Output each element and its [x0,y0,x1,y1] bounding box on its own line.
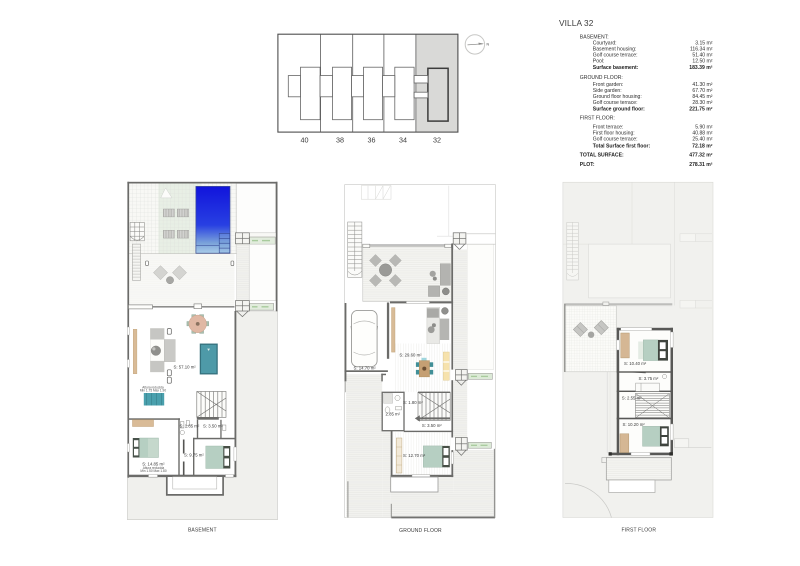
svg-text:Surface ground floor:: Surface ground floor: [593,107,645,113]
svg-text:VILLA 32: VILLA 32 [559,18,594,28]
svg-text:S: 10.40 m²: S: 10.40 m² [624,361,647,366]
svg-text:Total Surface first floor:: Total Surface first floor: [593,143,651,149]
svg-text:Min 1.50 Max 1.80: Min 1.50 Max 1.80 [140,469,166,473]
svg-text:32: 32 [433,136,441,145]
svg-text:FIRST FLOOR:: FIRST FLOOR: [580,115,615,121]
svg-text:S: 2.55 m²: S: 2.55 m² [622,396,642,401]
svg-text:36: 36 [368,136,376,145]
svg-text:Pool:: Pool: [593,58,605,64]
svg-text:GROUND FLOOR:: GROUND FLOOR: [580,75,623,81]
svg-text:28.30 m²: 28.30 m² [692,100,712,106]
svg-text:38: 38 [336,136,344,145]
svg-text:S: 3.50 m²: S: 3.50 m² [203,423,223,428]
svg-text:12.50 m²: 12.50 m² [692,58,712,64]
svg-text:Golf course terrace:: Golf course terrace: [593,137,638,143]
svg-text:S: 1.80 m²: S: 1.80 m² [403,400,423,405]
svg-text:BASEMENT: BASEMENT [188,528,217,534]
svg-text:GROUND FLOOR: GROUND FLOOR [399,528,442,534]
svg-text:S: 12.70 m²: S: 12.70 m² [403,453,426,458]
svg-text:278.31 m²: 278.31 m² [689,162,713,168]
svg-text:S: 10.20 m²: S: 10.20 m² [623,422,646,427]
svg-text:40: 40 [301,136,309,145]
svg-text:S: 57.10 m²: S: 57.10 m² [174,364,197,369]
svg-text:S: 3.75 m²: S: 3.75 m² [639,376,659,381]
svg-text:PLOT:: PLOT: [580,162,595,168]
svg-text:FIRST FLOOR: FIRST FLOOR [621,528,656,534]
svg-text:Golf course terrace:: Golf course terrace: [593,100,638,106]
svg-text:Min 1.75 Max 1.90: Min 1.75 Max 1.90 [140,389,166,393]
svg-text:477.32 m²: 477.32 m² [689,153,713,159]
svg-text:72.18 m²: 72.18 m² [692,143,713,149]
svg-text:S: 29.60 m²: S: 29.60 m² [399,352,422,357]
svg-text:Surface basement:: Surface basement: [593,65,639,71]
svg-text:34: 34 [399,136,407,145]
svg-text:S: 1.85 m²: S: 1.85 m² [180,423,200,428]
svg-text:183.39 m²: 183.39 m² [689,65,713,71]
svg-text:S: 3.50 m²: S: 3.50 m² [422,423,442,428]
svg-text:25.40 m²: 25.40 m² [692,137,712,143]
svg-text:2.85 m²: 2.85 m² [386,411,401,416]
svg-text:S: 14.70 m²: S: 14.70 m² [354,366,377,371]
svg-text:221.75 m²: 221.75 m² [689,107,713,113]
svg-text:TOTAL SURFACE:: TOTAL SURFACE: [580,153,624,159]
svg-text:S: 9.75 m²: S: 9.75 m² [184,453,204,458]
